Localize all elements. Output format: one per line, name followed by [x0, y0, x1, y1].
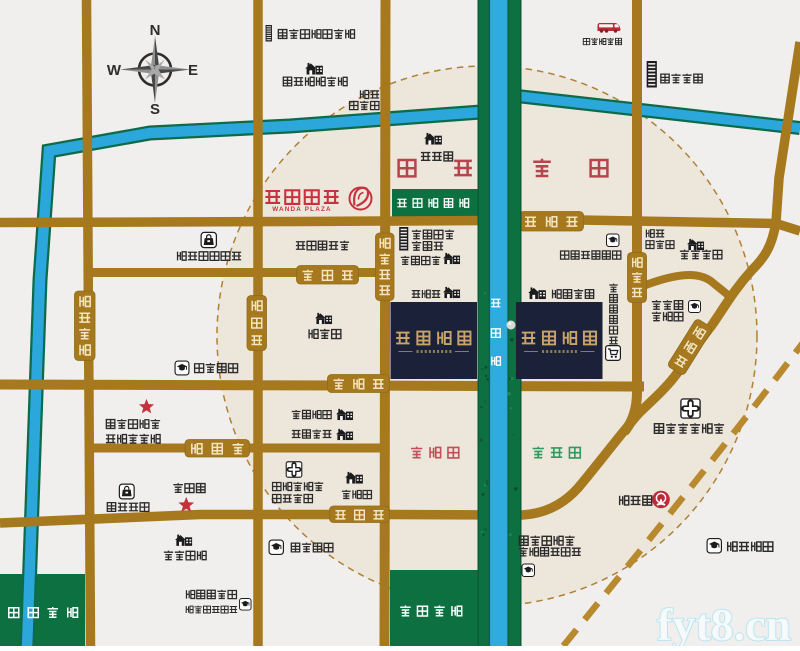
svg-text:S: S — [150, 101, 160, 118]
svg-text:W: W — [107, 62, 122, 79]
svg-text:WANDA PLAZA: WANDA PLAZA — [272, 206, 332, 213]
svg-text:E: E — [188, 62, 198, 79]
svg-text:N: N — [150, 22, 161, 39]
svg-text:fyt8.cn: fyt8.cn — [657, 599, 791, 646]
